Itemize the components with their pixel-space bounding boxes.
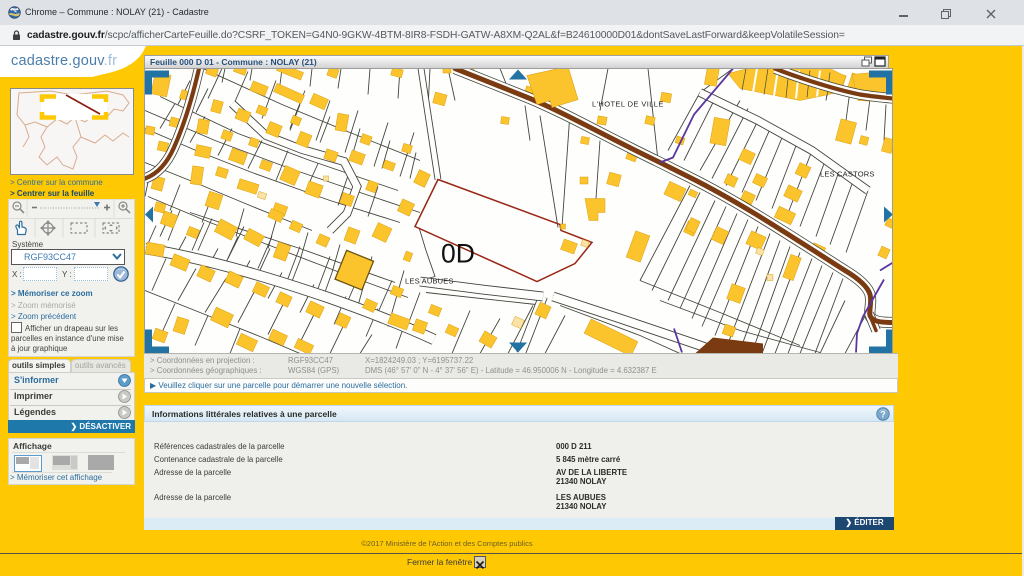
svg-text:?: ? <box>880 409 886 419</box>
